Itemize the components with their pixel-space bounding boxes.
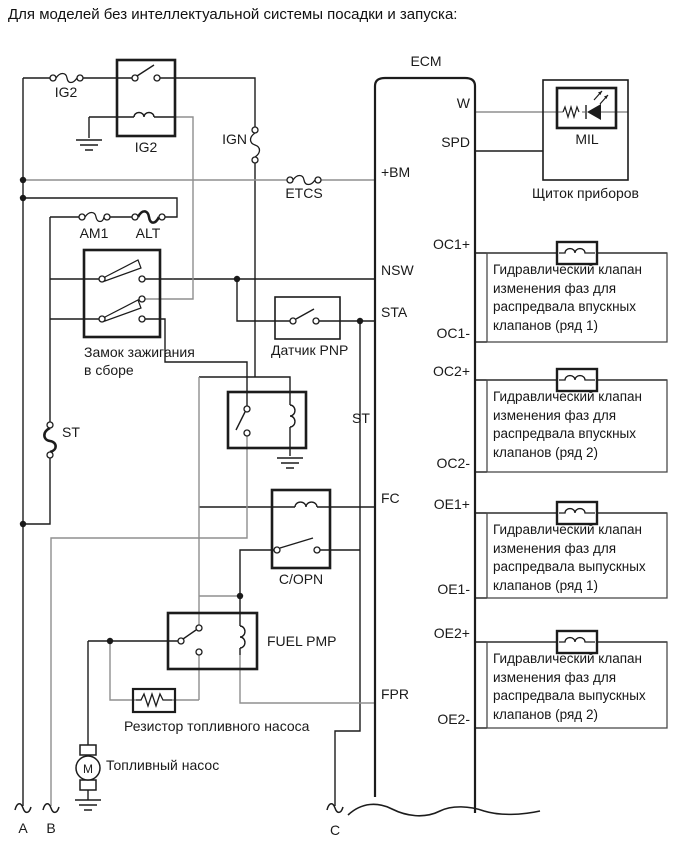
mil-label: MIL bbox=[560, 131, 614, 147]
connector-breaks bbox=[15, 804, 343, 813]
relay-ig2-icon bbox=[117, 60, 175, 136]
fuel-pump-motor-icon: M bbox=[76, 745, 100, 790]
valve-3-text: Гидравлический клапан изменения фаз для … bbox=[493, 521, 657, 595]
pnp-sensor-label: Датчик PNP bbox=[271, 342, 348, 358]
fuse-ign-icon bbox=[251, 127, 260, 163]
valve-2-text: Гидравлический клапан изменения фаз для … bbox=[493, 388, 657, 462]
fuse-am1-label: AM1 bbox=[70, 225, 118, 241]
relay-st-label: ST bbox=[352, 410, 370, 426]
pin-oe2-minus: OE2- bbox=[394, 711, 470, 727]
ground-ig2-icon bbox=[76, 140, 102, 150]
connector-b-label: B bbox=[43, 820, 59, 836]
valve-1-text: Гидравлический клапан изменения фаз для … bbox=[493, 261, 657, 335]
pin-oc1-plus: OC1+ bbox=[394, 236, 470, 252]
ground-pump-icon bbox=[75, 800, 101, 810]
pin-sta: STA bbox=[381, 304, 407, 320]
instrument-panel-icon bbox=[543, 80, 628, 180]
relay-fuel-pump-label: FUEL PMP bbox=[267, 633, 337, 649]
pnp-sensor-icon bbox=[275, 297, 340, 339]
ignition-switch-label: Замок зажигания в сборе bbox=[84, 343, 204, 379]
pin-bm: +BM bbox=[381, 164, 410, 180]
fuse-etcs-label: ETCS bbox=[275, 185, 333, 201]
ecm-label: ECM bbox=[404, 53, 448, 69]
fuse-am1-icon bbox=[79, 213, 110, 222]
instrument-panel-label: Щиток приборов bbox=[525, 185, 646, 201]
fuse-ig2-label: IG2 bbox=[42, 84, 90, 100]
pin-oe1-minus: OE1- bbox=[394, 581, 470, 597]
ecm-torn-edge bbox=[348, 804, 540, 815]
motor-letter: M bbox=[83, 762, 93, 776]
ignition-switch-icon bbox=[84, 250, 160, 337]
relay-copn-label: C/OPN bbox=[266, 571, 336, 587]
relay-fuel-pump-icon bbox=[168, 613, 257, 669]
fusible-alt-label: ALT bbox=[124, 225, 172, 241]
pin-oc2-plus: OC2+ bbox=[394, 363, 470, 379]
led-arrows-icon bbox=[594, 91, 608, 104]
fusible-st-label: ST bbox=[62, 424, 80, 440]
fusible-st-icon bbox=[44, 422, 55, 458]
ground-st-icon bbox=[277, 458, 303, 468]
fuse-etcs-icon bbox=[287, 176, 321, 185]
pin-oe1-plus: OE1+ bbox=[394, 496, 470, 512]
pin-w: W bbox=[394, 95, 470, 111]
fusible-alt-icon bbox=[132, 211, 165, 222]
pin-fpr: FPR bbox=[381, 686, 409, 702]
fuel-resistor-label: Резистор топливного насоса bbox=[124, 718, 309, 734]
valve-4-text: Гидравлический клапан изменения фаз для … bbox=[493, 650, 657, 724]
fuel-resistor-icon bbox=[133, 689, 175, 712]
led-triangle-icon bbox=[587, 104, 601, 120]
wiring-diagram: Для моделей без интеллектуальной системы… bbox=[0, 0, 691, 855]
pin-oe2-plus: OE2+ bbox=[394, 625, 470, 641]
pin-oc1-minus: OC1- bbox=[394, 325, 470, 341]
relay-copn-icon bbox=[272, 490, 330, 568]
pin-nsw: NSW bbox=[381, 262, 414, 278]
relay-ig2-label: IG2 bbox=[120, 139, 172, 155]
connector-c-label: C bbox=[327, 822, 343, 838]
mil-resistor-icon bbox=[563, 107, 579, 117]
relay-st-icon bbox=[228, 392, 306, 448]
pin-oc2-minus: OC2- bbox=[394, 455, 470, 471]
fuel-pump-label: Топливный насос bbox=[106, 757, 219, 773]
connector-a-label: A bbox=[15, 820, 31, 836]
fuse-ig2-icon bbox=[50, 74, 83, 83]
pin-spd: SPD bbox=[394, 134, 470, 150]
fuse-ign-label: IGN bbox=[200, 131, 247, 147]
